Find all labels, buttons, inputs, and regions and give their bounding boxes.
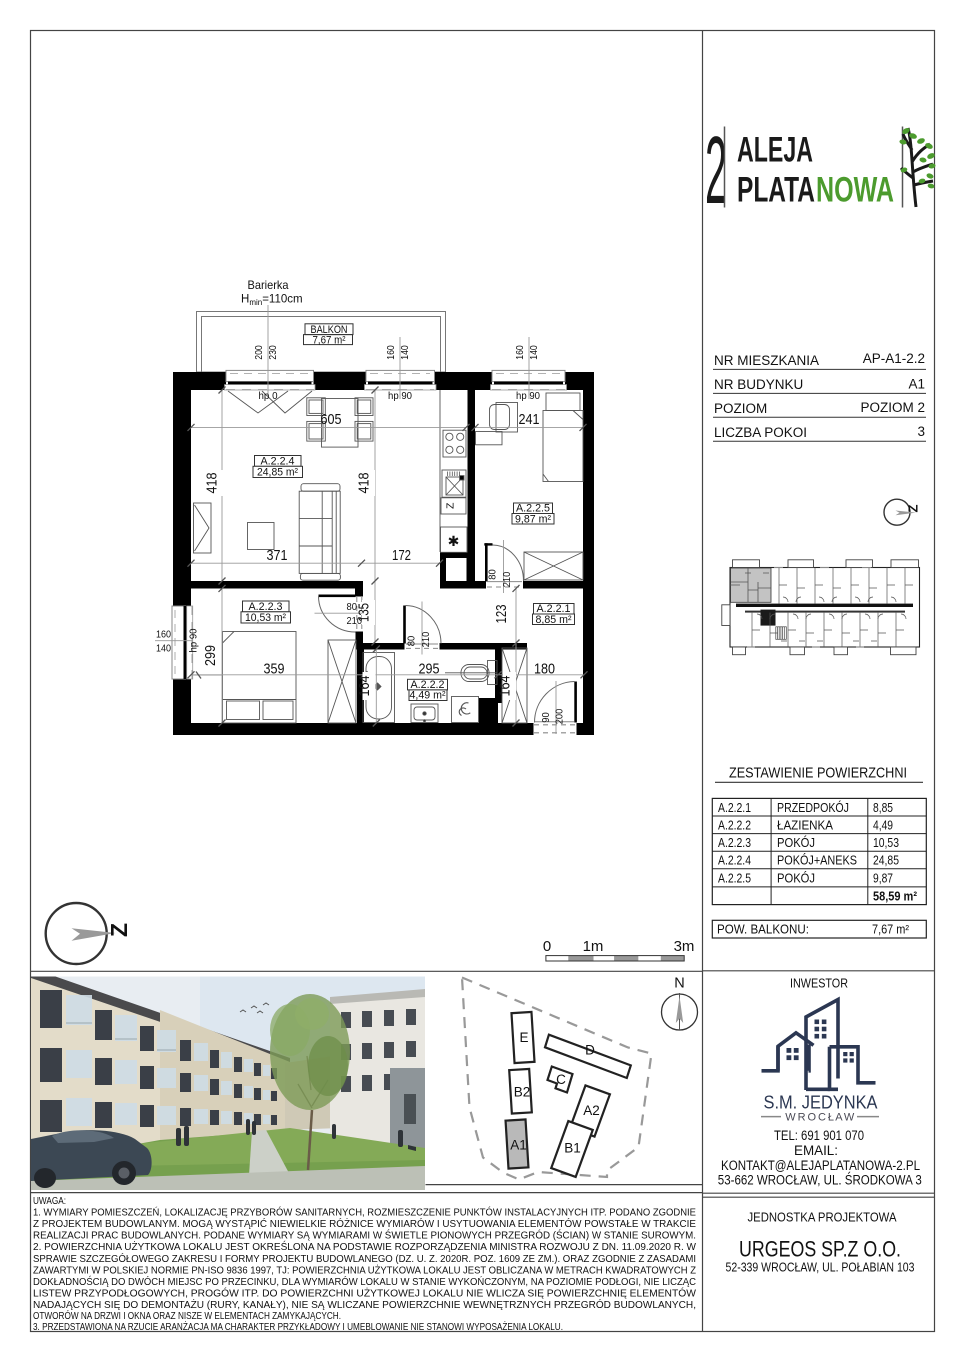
svg-text:Z PROJEKTEM BUDOWLANYM. MOGĄ W: Z PROJEKTEM BUDOWLANYM. MOGĄ WYSTĄPIĆ NI… (33, 1217, 696, 1230)
svg-text:OTWORÓW NA DRZWI I OKNA ORAZ N: OTWORÓW NA DRZWI I OKNA ORAZ NISZE W ELE… (33, 1309, 341, 1322)
svg-text:SPRAWIE SZCZEGÓŁOWEGO ZAKRESU: SPRAWIE SZCZEGÓŁOWEGO ZAKRESU I FORMY PR… (33, 1252, 696, 1265)
svg-text:LISTEW PRZYPODŁOGOWYCH, PROGÓW: LISTEW PRZYPODŁOGOWYCH, PROGÓW ITP. DO P… (33, 1286, 697, 1299)
svg-text:UWAGA:: UWAGA: (33, 1196, 66, 1207)
svg-text:REALIZACJI PRAC BUDOWLANYCH. P: REALIZACJI PRAC BUDOWLANYCH. PODANE WYMI… (33, 1229, 696, 1242)
svg-text:NADAJĄCYCH SIĘ DO DEMONTAŻU (R: NADAJĄCYCH SIĘ DO DEMONTAŻU (RURY, KANAŁ… (33, 1298, 696, 1311)
svg-text:DOKŁADNOŚCIĄ DO DWÓCH MIEJSC P: DOKŁADNOŚCIĄ DO DWÓCH MIEJSC PO PRZECINK… (33, 1275, 696, 1288)
svg-text:2. POWIERZCHNIA UŻYTKOWA LOKAL: 2. POWIERZCHNIA UŻYTKOWA LOKALU JEST OKR… (33, 1240, 697, 1253)
svg-text:ZAWARTYMI W POLSKIEJ NORMIE PN: ZAWARTYMI W POLSKIEJ NORMIE PN-ISO 9836 … (33, 1263, 696, 1276)
svg-text:3. PRZEDSTAWIONA NA RZUCIE ARA: 3. PRZEDSTAWIONA NA RZUCIE ARANŻACJA MA … (33, 1320, 563, 1333)
svg-text:1. WYMIARY POMIESZCZEŃ, LOKALI: 1. WYMIARY POMIESZCZEŃ, LOKALIZACJĘ PRZY… (33, 1206, 696, 1219)
